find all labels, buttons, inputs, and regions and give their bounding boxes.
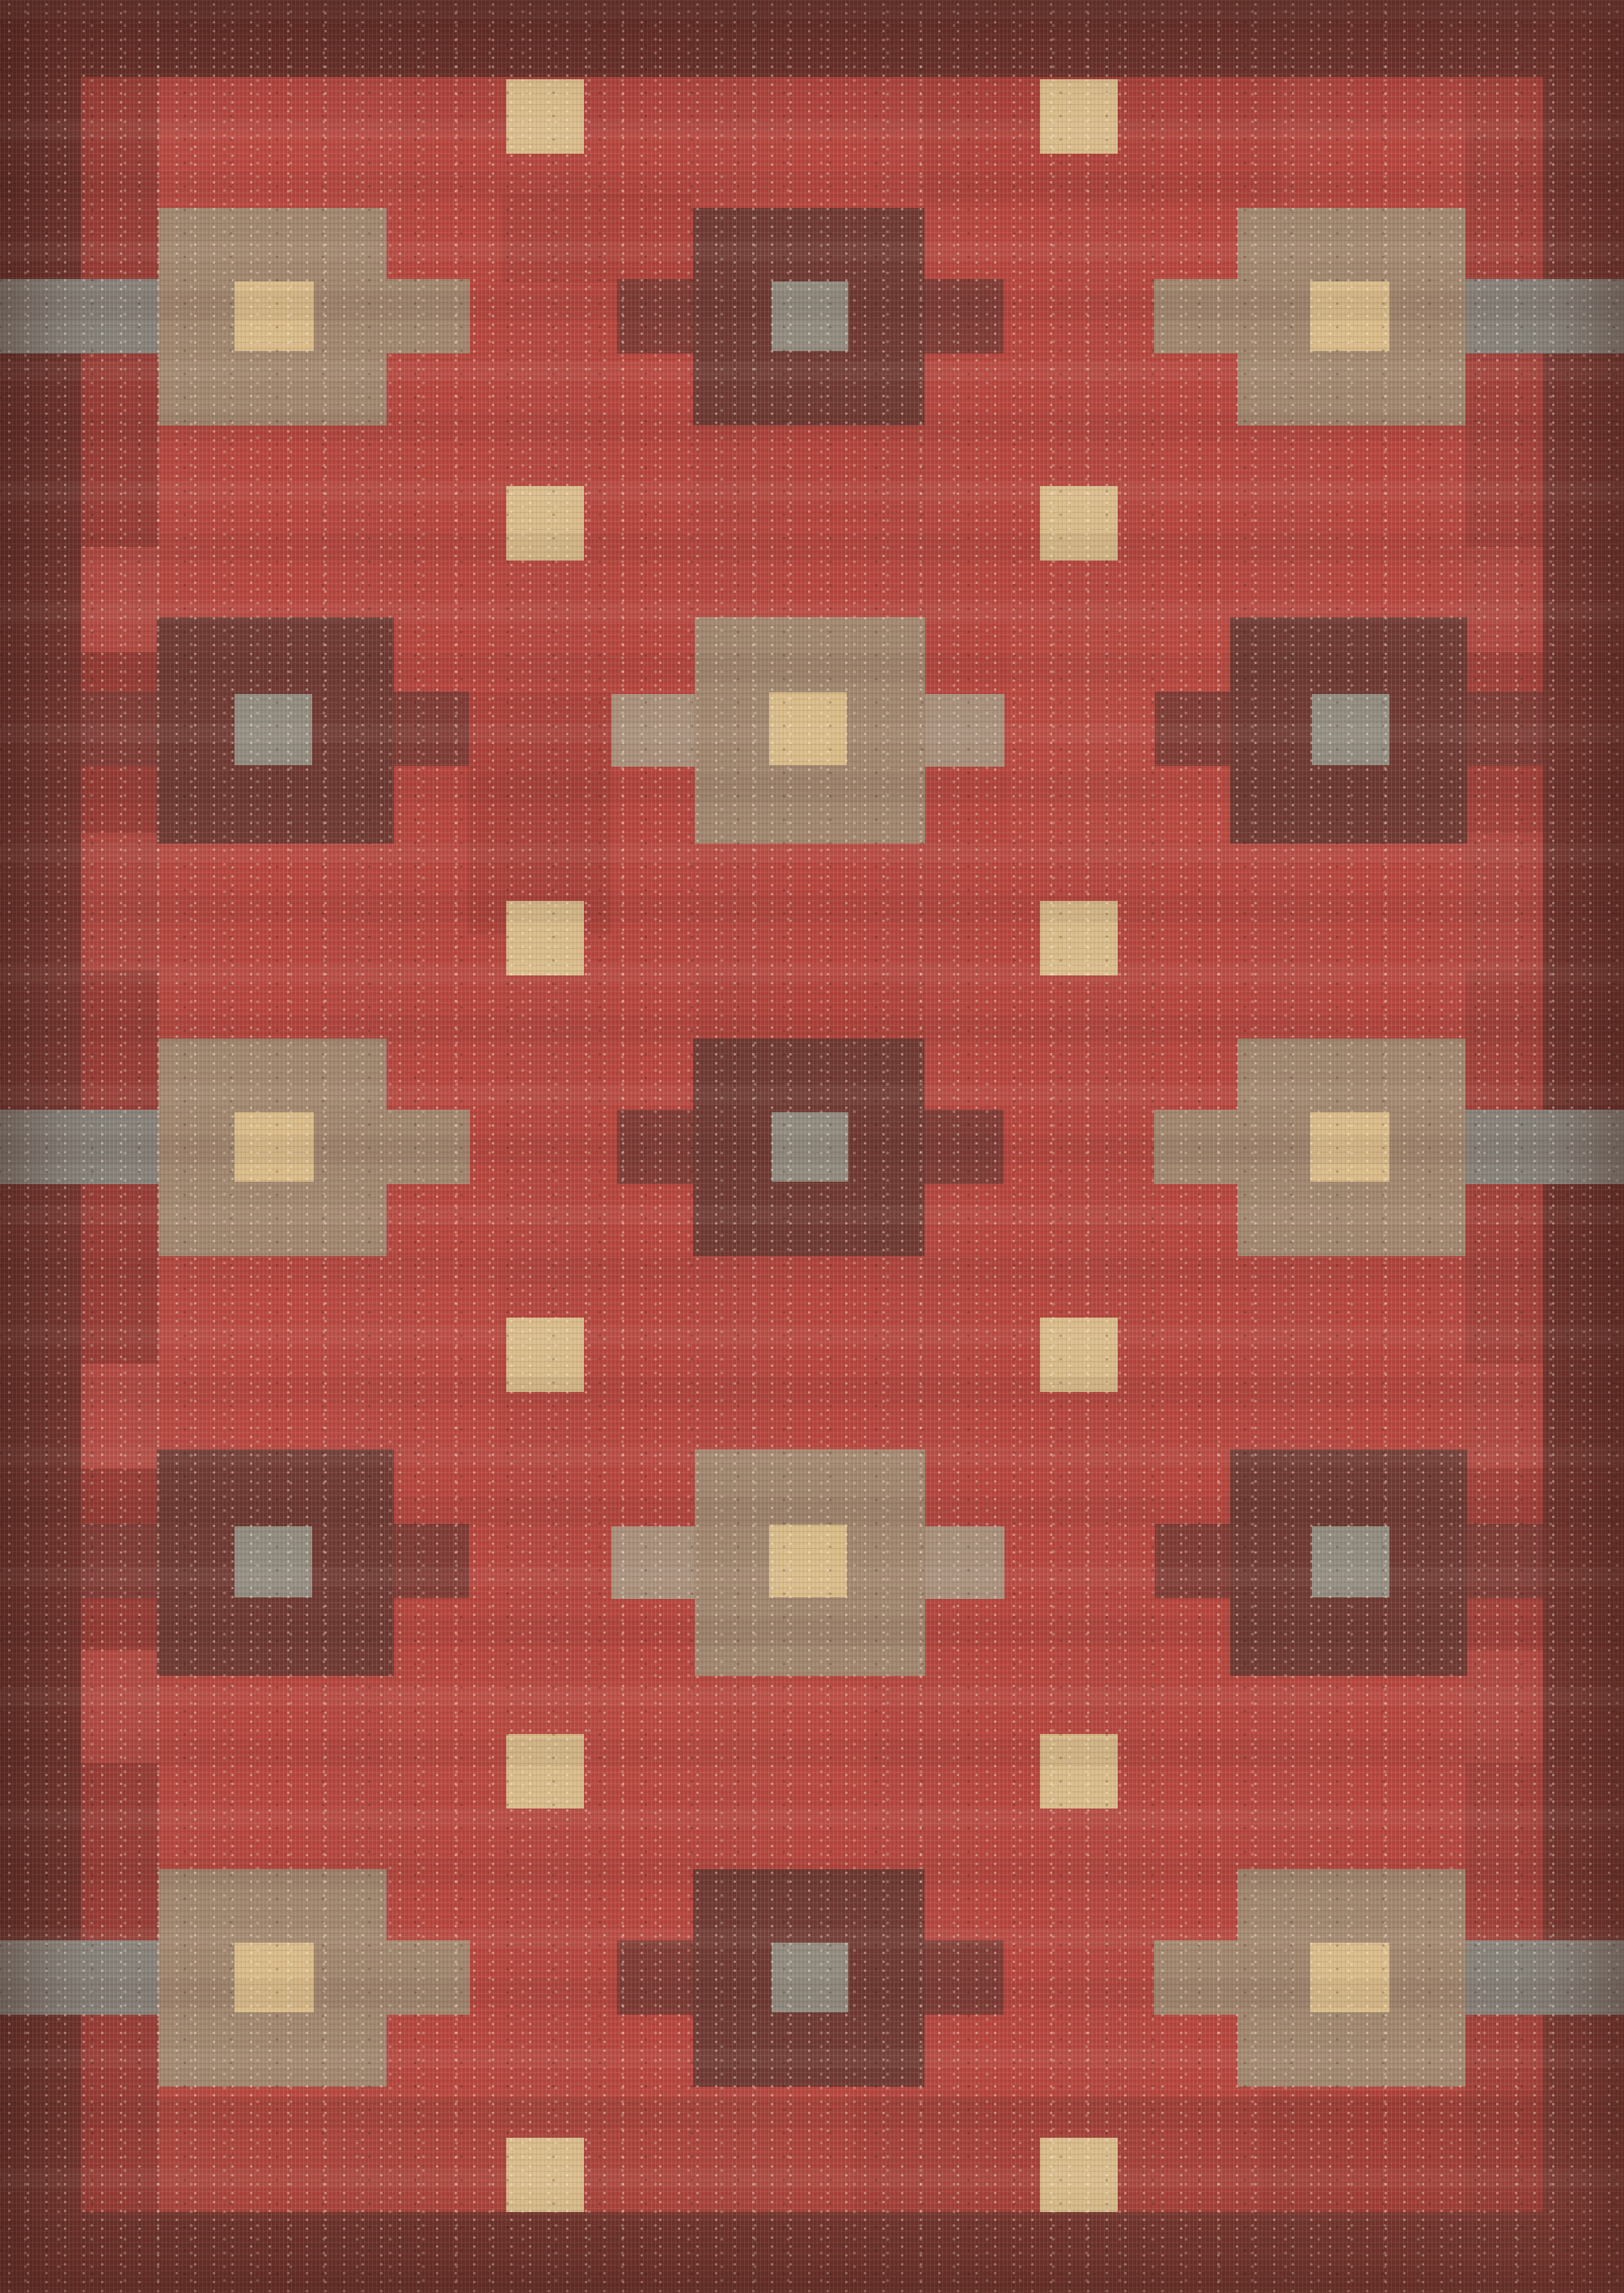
dark-motif-border-tab xyxy=(81,692,157,766)
abrash-patch-light xyxy=(385,1682,870,1787)
gray-center xyxy=(772,281,848,351)
abrash-patch-light xyxy=(1465,1650,1543,1763)
cream-center xyxy=(769,1525,847,1597)
dark-motif-tab xyxy=(1155,692,1230,766)
dark-motif-wing xyxy=(617,279,693,353)
dark-motif-tab xyxy=(394,1524,469,1598)
taupe-motif-wing xyxy=(611,1526,695,1599)
dark-motif-wing xyxy=(924,1110,1004,1184)
gray-bar-right xyxy=(1465,279,1624,353)
gray-center xyxy=(772,1112,848,1182)
dark-motif-border-tab xyxy=(1467,1524,1543,1598)
small-cream-square xyxy=(1040,2138,1118,2212)
abrash-patch-light xyxy=(1465,547,1543,652)
rug-photo xyxy=(0,0,1624,2293)
abrash-patch-light xyxy=(159,1260,498,1446)
gray-bar-left xyxy=(0,279,159,353)
gray-center xyxy=(235,694,312,765)
cream-center xyxy=(1310,281,1389,351)
taupe-motif-tab xyxy=(1154,1940,1237,2015)
dark-motif-wing xyxy=(617,1110,693,1184)
abrash-patch-dark xyxy=(693,425,924,522)
small-cream-square xyxy=(506,79,584,154)
small-cream-square xyxy=(1040,901,1118,975)
abrash-patch-light xyxy=(81,547,159,652)
small-cream-square xyxy=(1040,486,1118,561)
small-cream-square xyxy=(506,1734,584,1809)
small-cream-square xyxy=(1040,79,1118,154)
taupe-motif-wing xyxy=(925,1526,1004,1599)
abrash-patch-dark xyxy=(467,692,611,935)
abrash-patch-dark xyxy=(501,194,693,283)
dark-motif-wing xyxy=(617,1940,693,2015)
small-cream-square xyxy=(1040,1318,1118,1392)
cream-center xyxy=(769,692,847,765)
abrash-patch-light xyxy=(1465,1364,1543,1469)
abrash-patch-light xyxy=(81,1364,159,1469)
gray-center xyxy=(772,1943,848,2012)
taupe-motif-tab xyxy=(387,279,470,353)
taupe-motif-tab xyxy=(387,1940,470,2015)
gray-bar-left xyxy=(0,1110,159,1184)
cream-center xyxy=(1310,1112,1389,1182)
gray-bar-right xyxy=(1465,1110,1624,1184)
dark-motif-border-tab xyxy=(81,1524,157,1598)
abrash-patch-light xyxy=(81,833,159,971)
abrash-patch-light xyxy=(159,77,401,206)
cream-center xyxy=(1310,1943,1389,2012)
small-cream-square xyxy=(506,1318,584,1392)
gray-bar-right xyxy=(1465,1940,1624,2015)
small-cream-square xyxy=(1040,1734,1118,1809)
gray-bar-left xyxy=(0,1940,159,2015)
cream-center xyxy=(235,281,314,351)
abrash-patch-light xyxy=(1465,833,1543,971)
gray-center xyxy=(1312,694,1389,765)
taupe-motif-tab xyxy=(1154,1110,1237,1184)
taupe-motif-tab xyxy=(387,1110,470,1184)
taupe-motif-tab xyxy=(1154,279,1237,353)
abrash-patch-light xyxy=(81,1650,159,1763)
cream-center xyxy=(235,1943,314,2012)
small-cream-square xyxy=(506,2138,584,2212)
small-cream-square xyxy=(506,901,584,975)
dark-motif-tab xyxy=(1155,1524,1230,1598)
gray-center xyxy=(1312,1526,1389,1597)
taupe-motif-wing xyxy=(925,694,1004,767)
taupe-motif-wing xyxy=(611,694,695,767)
dark-motif-border-tab xyxy=(1467,692,1543,766)
small-cream-square xyxy=(506,486,584,561)
dark-motif-wing xyxy=(924,1940,1004,2015)
dark-motif-tab xyxy=(394,692,469,766)
cream-center xyxy=(235,1112,314,1182)
dark-motif-wing xyxy=(924,279,1004,353)
gray-center xyxy=(235,1526,312,1597)
abrash-patch-dark xyxy=(1262,2091,1543,2212)
